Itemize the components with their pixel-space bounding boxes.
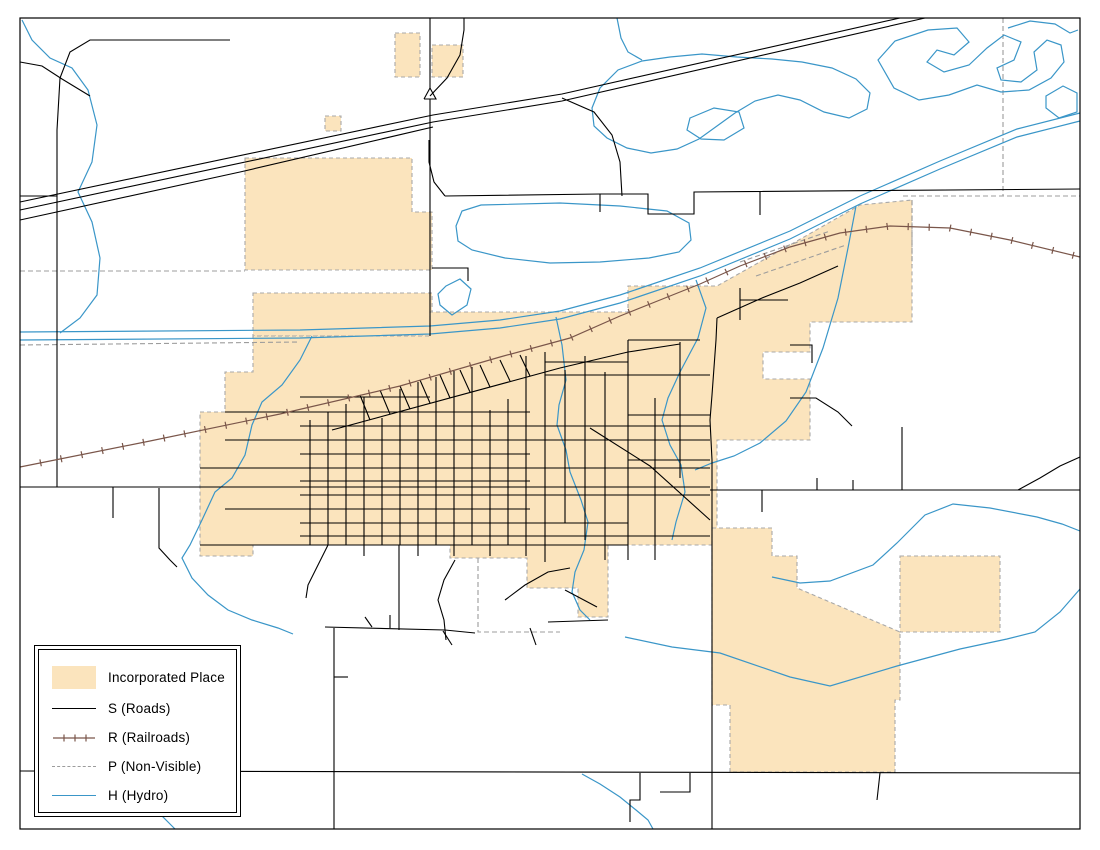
- legend-label: S (Roads): [108, 701, 171, 716]
- legend-label: H (Hydro): [108, 788, 168, 803]
- legend-inner-border: Incorporated PlaceS (Roads)R (Railroads)…: [38, 649, 237, 813]
- legend-item-dash: P (Non-Visible): [52, 752, 236, 781]
- legend-label: P (Non-Visible): [108, 759, 201, 774]
- legend: Incorporated PlaceS (Roads)R (Railroads)…: [34, 645, 241, 817]
- road-line-swatch: [52, 708, 96, 709]
- dash-line-swatch: [52, 766, 96, 767]
- legend-item-road: S (Roads): [52, 694, 236, 723]
- legend-item-hydro: H (Hydro): [52, 781, 236, 810]
- hydro-line-swatch: [52, 795, 96, 796]
- incorporated-place-swatch: [52, 666, 96, 689]
- legend-label: R (Railroads): [108, 730, 190, 745]
- legend-label: Incorporated Place: [108, 670, 225, 685]
- legend-items: Incorporated PlaceS (Roads)R (Railroads)…: [52, 661, 236, 810]
- railroad-line-swatch: [52, 732, 96, 744]
- layer-places: [200, 33, 1000, 772]
- legend-item-fill: Incorporated Place: [52, 661, 236, 694]
- legend-item-rail: R (Railroads): [52, 723, 236, 752]
